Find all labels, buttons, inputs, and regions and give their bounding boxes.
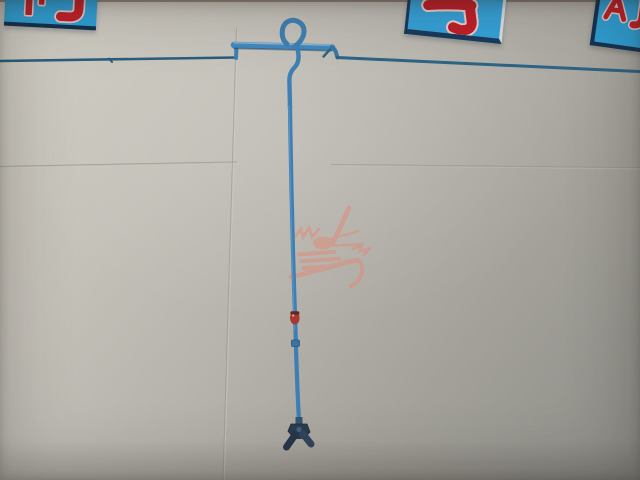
sign-left-glyph-hook (54, 0, 79, 17)
pipe-assembly (0, 0, 640, 480)
sign-right-glyphs (594, 0, 640, 50)
pipe-loop (282, 20, 304, 46)
sign-left-glyph-bar1 (24, 0, 33, 16)
red-valve (290, 311, 300, 324)
nozzle-prong-right (303, 434, 311, 444)
sign-middle-glyph-hook (426, 0, 474, 31)
pipe-vertical-drop (290, 106, 299, 421)
sign-left (4, 0, 98, 30)
sign-left-glyphs (4, 0, 98, 26)
pipe-descender-jog (289, 49, 298, 108)
pipe-thin-right-run (337, 58, 640, 72)
y-nozzle (287, 417, 312, 447)
collar-joint (292, 340, 300, 347)
pipe-right-elbow (332, 47, 338, 58)
nozzle-hub (296, 427, 301, 432)
sign-right-glyph-a (606, 0, 627, 19)
photo-canvas: Photograph of a pale panelled wall carry… (0, 0, 640, 480)
sign-left-glyph-bar2 (38, 0, 46, 6)
pipe-thin-left-run (0, 58, 236, 62)
sign-middle-glyphs (408, 0, 505, 39)
sign-right-glyph-hook (633, 0, 640, 26)
nozzle-prong-left (287, 435, 296, 447)
